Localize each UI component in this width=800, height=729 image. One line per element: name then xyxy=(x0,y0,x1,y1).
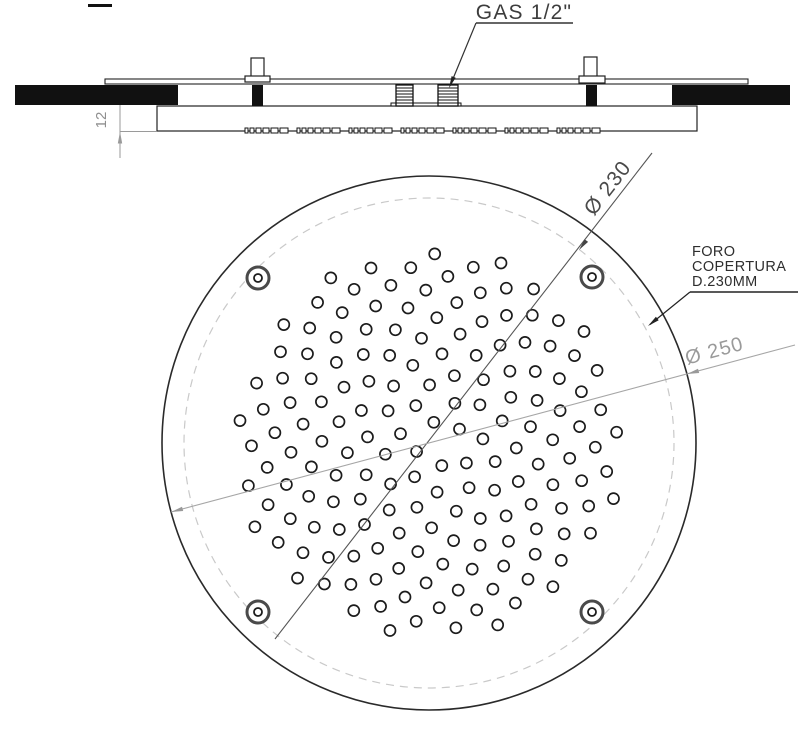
nozzle-hole xyxy=(431,312,442,323)
nozzle-hole xyxy=(334,524,345,535)
nozzle-hole xyxy=(395,428,406,439)
nozzle-hole xyxy=(501,310,512,321)
nozzle-hole xyxy=(474,399,485,410)
screw-center-hole xyxy=(254,274,262,282)
nozzle-hole xyxy=(449,370,460,381)
nozzle-hole xyxy=(390,324,401,335)
foro-copertura-note: FORO COPERTURA D.230MM xyxy=(648,244,798,326)
nozzle-tick xyxy=(280,128,288,133)
dim-12-value: 12 xyxy=(93,112,110,129)
nozzle-hole xyxy=(285,513,296,524)
stud-flange xyxy=(579,76,605,83)
nozzle-hole xyxy=(372,543,383,554)
nozzle-hole xyxy=(556,555,567,566)
nozzle-tick xyxy=(471,128,477,133)
nozzle-hole xyxy=(520,337,531,348)
nozzle-hole xyxy=(303,491,314,502)
nozzle-hole xyxy=(496,258,507,269)
nozzle-hole xyxy=(576,386,587,397)
nozzle-tick xyxy=(308,128,313,133)
nozzle-hole xyxy=(467,564,478,575)
nozzle-hole xyxy=(490,456,501,467)
nozzle-hole xyxy=(559,528,570,539)
nozzle-hole xyxy=(448,535,459,546)
nozzle-hole xyxy=(437,559,448,570)
nozzle-hole xyxy=(434,602,445,613)
nozzle-hole xyxy=(453,585,464,596)
nozzle-hole xyxy=(384,350,395,361)
gas-callout: GAS 1/2" xyxy=(449,1,573,88)
nozzle-hole xyxy=(262,462,273,473)
nozzle-hole xyxy=(554,373,565,384)
nozzle-hole xyxy=(601,466,612,477)
nozzle-tick xyxy=(354,128,358,133)
nozzle-hole xyxy=(429,248,440,259)
nozzle-hole xyxy=(331,357,342,368)
nozzle-hole xyxy=(513,476,524,487)
nozzle-hole xyxy=(492,619,503,630)
nozzle-hole xyxy=(411,502,422,513)
nozzle-hole xyxy=(525,421,536,432)
nozzle-hole xyxy=(436,460,447,471)
nozzle-hole xyxy=(363,376,374,387)
nozzle-tick xyxy=(458,128,462,133)
nozzle-hole xyxy=(451,297,462,308)
nozzle-hole xyxy=(574,421,585,432)
nozzle-hole xyxy=(426,522,437,533)
nozzle-hole xyxy=(275,346,286,357)
nozzle-hole xyxy=(385,280,396,291)
nozzle-hole xyxy=(576,475,587,486)
mounting-plate-section xyxy=(105,79,748,84)
nozzle-hole xyxy=(464,482,475,493)
nozzle-tick xyxy=(464,128,469,133)
nozzle-hole xyxy=(523,574,534,585)
section-view: 12 GAS 1/2" xyxy=(15,1,790,158)
nozzle-hole xyxy=(527,310,538,321)
screw-center-hole xyxy=(254,608,262,616)
nozzle-tick xyxy=(592,128,600,133)
technical-drawing-page: 12 GAS 1/2" Ø 230 Ø 250 F xyxy=(0,0,800,729)
nozzle-hole xyxy=(361,324,372,335)
nozzle-hole xyxy=(505,392,516,403)
nozzle-hole xyxy=(477,316,488,327)
nozzle-strip-section xyxy=(245,128,600,133)
nozzle-hole xyxy=(243,480,254,491)
nozzle-tick xyxy=(562,128,566,133)
nozzle-hole xyxy=(285,397,296,408)
nozzle-hole xyxy=(511,443,522,454)
nozzle-hole xyxy=(547,581,558,592)
nozzle-hole xyxy=(384,505,395,516)
nozzle-tick xyxy=(568,128,573,133)
nozzle-hole xyxy=(348,605,359,616)
nozzle-hole xyxy=(325,272,336,283)
stud-flange xyxy=(245,76,270,82)
nozzle-hole xyxy=(421,577,432,588)
nozzle-hole xyxy=(553,315,564,326)
nozzle-tick xyxy=(263,128,269,133)
nozzle-hole xyxy=(475,540,486,551)
nozzle-hole xyxy=(432,487,443,498)
ceiling-panel-left-section xyxy=(15,85,178,105)
nozzle-hole xyxy=(263,499,274,510)
nozzle-hole xyxy=(339,382,350,393)
nozzle-tick xyxy=(297,128,300,133)
nozzle-hole xyxy=(356,405,367,416)
nozzle-hole xyxy=(345,579,356,590)
nozzle-hole xyxy=(592,365,603,376)
nozzle-hole xyxy=(337,307,348,318)
nozzle-hole xyxy=(362,431,373,442)
nozzle-hole xyxy=(316,396,327,407)
nozzle-hole xyxy=(385,479,396,490)
nozzle-tick xyxy=(302,128,306,133)
nozzle-tick xyxy=(531,128,538,133)
reference-dash-mark xyxy=(88,4,112,7)
nozzle-hole xyxy=(545,341,556,352)
nozzle-tick xyxy=(583,128,590,133)
nozzle-tick xyxy=(271,128,278,133)
nozzle-hole xyxy=(409,471,420,482)
nozzle-hole xyxy=(547,479,558,490)
nozzle-tick xyxy=(479,128,486,133)
nozzle-hole xyxy=(579,326,590,337)
nozzle-tick xyxy=(516,128,521,133)
nozzle-tick xyxy=(412,128,417,133)
nozzle-tick xyxy=(315,128,321,133)
gas-label: GAS 1/2" xyxy=(476,1,572,24)
nozzle-hole xyxy=(498,561,509,572)
nozzle-hole xyxy=(528,284,539,295)
nozzle-hole xyxy=(306,461,317,472)
nozzle-tick xyxy=(575,128,581,133)
nozzle-hole xyxy=(358,349,369,360)
nozzle-hole xyxy=(366,263,377,274)
nozzle-hole xyxy=(249,521,260,532)
foro-note-line2: COPERTURA xyxy=(692,259,786,275)
nozzle-hole xyxy=(269,427,280,438)
nozzle-hole xyxy=(385,625,396,636)
nozzle-hole xyxy=(455,329,466,340)
nozzle-hole xyxy=(394,528,405,539)
stud-shaft xyxy=(251,58,264,78)
nozzle-tick xyxy=(510,128,514,133)
stud-pin xyxy=(252,85,263,106)
nozzle-hole xyxy=(530,366,541,377)
nozzle-hole xyxy=(501,283,512,294)
nozzle-tick xyxy=(256,128,261,133)
shower-body-section xyxy=(157,106,697,131)
nozzle-hole xyxy=(590,442,601,453)
nozzle-hole xyxy=(251,378,262,389)
nozzle-hole xyxy=(611,427,622,438)
nozzle-hole xyxy=(323,552,334,563)
nozzle-hole xyxy=(302,348,313,359)
nozzle-hole xyxy=(503,536,514,547)
nozzle-hole xyxy=(292,573,303,584)
nozzle-hole xyxy=(501,510,512,521)
gas-leader-line xyxy=(450,23,476,86)
nozzle-hole xyxy=(286,447,297,458)
nozzle-hole xyxy=(258,404,269,415)
nozzle-hole xyxy=(533,459,544,470)
nozzle-hole xyxy=(420,285,431,296)
nozzle-hole xyxy=(278,319,289,330)
nozzle-hole xyxy=(342,447,353,458)
dimension-12: 12 xyxy=(93,105,157,158)
nozzle-hole xyxy=(371,574,382,585)
nozzle-hole xyxy=(595,404,606,415)
dim-250-arrow-right-icon xyxy=(687,369,699,374)
stud-pin xyxy=(586,85,597,106)
nozzle-hole xyxy=(400,592,411,603)
nozzle-hole xyxy=(407,360,418,371)
nozzle-hole xyxy=(331,332,342,343)
dim-12-arrow-icon xyxy=(118,132,122,144)
nozzle-hole xyxy=(416,333,427,344)
nozzle-hole xyxy=(608,493,619,504)
nozzle-hole xyxy=(393,563,404,574)
nozzle-tick xyxy=(557,128,560,133)
nozzle-tick xyxy=(367,128,373,133)
screw-center-hole xyxy=(588,273,596,281)
nozzle-tick xyxy=(250,128,254,133)
nozzle-tick xyxy=(384,128,392,133)
nozzle-hole xyxy=(583,501,594,512)
nozzle-hole xyxy=(312,297,323,308)
foro-note-line3: D.230MM xyxy=(692,274,758,290)
nozzle-hole xyxy=(309,522,320,533)
nozzle-hole xyxy=(454,424,465,435)
nozzle-hole xyxy=(461,458,472,469)
nozzle-hole xyxy=(510,598,521,609)
nozzle-tick xyxy=(401,128,404,133)
nozzle-tick xyxy=(360,128,365,133)
nozzle-hole xyxy=(349,284,360,295)
nozzle-hole xyxy=(383,405,394,416)
nozzle-hole xyxy=(348,551,359,562)
nozzle-hole xyxy=(273,537,284,548)
nozzle-tick xyxy=(245,128,248,133)
nozzle-hole xyxy=(306,373,317,384)
nozzle-hole xyxy=(405,262,416,273)
nozzle-hole xyxy=(532,395,543,406)
nozzle-hole xyxy=(475,513,486,524)
nozzle-hole xyxy=(411,616,422,627)
nozzle-hole xyxy=(298,419,309,430)
nozzle-hole xyxy=(468,262,479,273)
nozzle-hole xyxy=(437,348,448,359)
nozzle-hole xyxy=(526,499,537,510)
nozzle-hole xyxy=(471,350,482,361)
nozzle-hole xyxy=(547,434,558,445)
nozzle-hole xyxy=(298,547,309,558)
nozzle-hole xyxy=(277,373,288,384)
nozzle-hole xyxy=(585,528,596,539)
nozzle-hole xyxy=(442,271,453,282)
dim-250-value: Ø 250 xyxy=(683,333,746,370)
nozzle-hole xyxy=(328,496,339,507)
nozzle-hole xyxy=(246,440,257,451)
nozzle-hole xyxy=(556,503,567,514)
nozzle-tick xyxy=(406,128,410,133)
nozzle-hole xyxy=(487,584,498,595)
nozzle-hole xyxy=(477,433,488,444)
nozzle-hole xyxy=(403,303,414,314)
plan-view: Ø 230 Ø 250 FORO COPERTURA D.230MM xyxy=(162,153,798,710)
nozzle-hole xyxy=(530,549,541,560)
nozzle-hole xyxy=(504,366,515,377)
nozzle-hole xyxy=(475,287,486,298)
nozzle-tick xyxy=(523,128,529,133)
nozzle-tick xyxy=(323,128,330,133)
nozzle-tick xyxy=(419,128,425,133)
nozzle-hole xyxy=(489,485,500,496)
nozzle-tick xyxy=(488,128,496,133)
nozzle-tick xyxy=(375,128,382,133)
nozzle-tick xyxy=(427,128,434,133)
nozzle-tick xyxy=(332,128,340,133)
nozzle-hole xyxy=(451,506,462,517)
nozzle-tick xyxy=(505,128,508,133)
nozzle-hole xyxy=(355,494,366,505)
nozzle-hole xyxy=(361,469,372,480)
nozzle-hole xyxy=(316,436,327,447)
nozzle-hole xyxy=(331,470,342,481)
stud-shaft xyxy=(584,57,597,78)
shower-head-drawing: 12 GAS 1/2" Ø 230 Ø 250 F xyxy=(0,0,800,729)
nozzle-hole xyxy=(375,601,386,612)
nozzle-hole xyxy=(424,379,435,390)
nozzle-hole xyxy=(412,546,423,557)
nozzle-hole xyxy=(334,416,345,427)
nozzle-hole xyxy=(235,415,246,426)
nozzle-tick xyxy=(436,128,444,133)
nozzle-hole xyxy=(428,417,439,428)
nozzle-hole xyxy=(569,350,580,361)
nozzle-tick xyxy=(540,128,548,133)
nozzle-hole xyxy=(410,400,421,411)
foro-note-line1: FORO xyxy=(692,244,736,260)
nozzle-hole xyxy=(388,381,399,392)
nozzle-tick xyxy=(349,128,352,133)
screw-center-hole xyxy=(588,608,596,616)
nozzle-hole xyxy=(450,622,461,633)
nozzle-tick xyxy=(453,128,456,133)
ceiling-panel-right-section xyxy=(672,85,790,105)
nozzle-hole xyxy=(564,453,575,464)
nozzle-hole xyxy=(471,604,482,615)
nozzle-hole xyxy=(304,323,315,334)
nozzle-hole xyxy=(370,301,381,312)
nozzle-hole xyxy=(531,523,542,534)
